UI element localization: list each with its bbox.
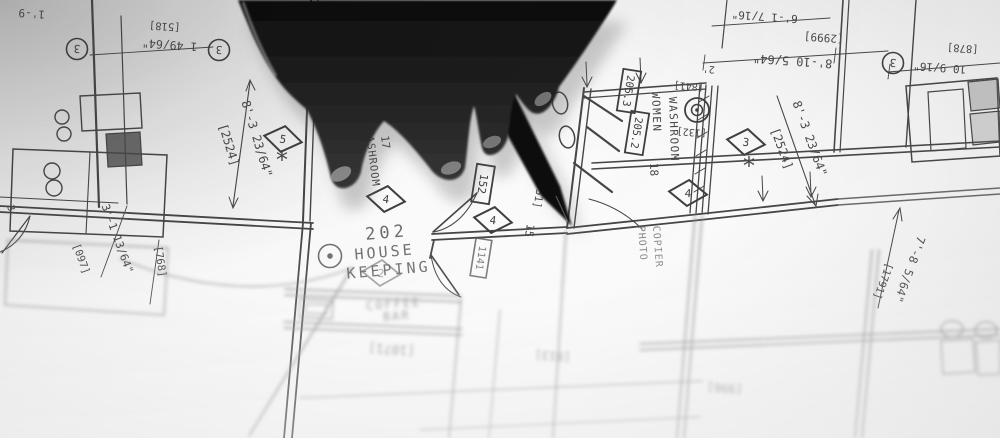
- blueprint-photo: 5 4 4 4 3 2 3 3 3 152 205.3 205.2 1141 1…: [0, 0, 1000, 438]
- photo-hand-over-blueprint: 5 4 4 4 3 2 3 3 3 152 205.3 205.2 1141 1…: [0, 0, 1000, 438]
- vignette-overlay: [0, 0, 1000, 438]
